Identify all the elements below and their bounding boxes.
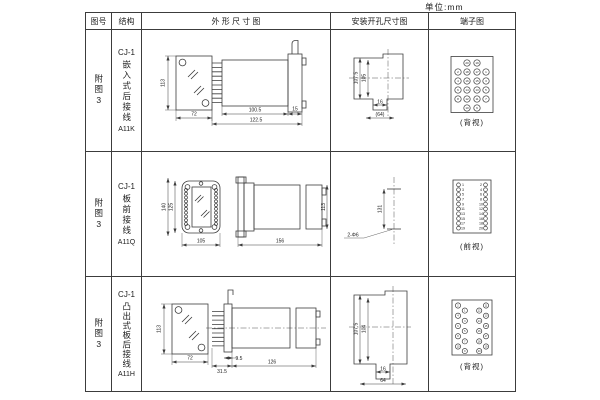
terminal-screw-columns	[185, 189, 218, 226]
svg-text:6: 6	[480, 192, 482, 196]
model-label: CJ-1	[118, 290, 135, 299]
mounting-drawing-row2: 131 2-Φ6	[331, 152, 428, 276]
svg-text:1: 1	[464, 309, 466, 312]
cell-mounting-row1: 107.5 105 16 (64)	[331, 30, 429, 152]
dim-label: 105	[362, 74, 368, 83]
cell-terminal-row3: 2143658710912111413161518172019 (背视)	[429, 277, 515, 391]
model-code: A11Q	[118, 239, 135, 246]
svg-text:1: 1	[485, 70, 487, 74]
terminal-diagram-row3: 2143658710912111413161518172019	[429, 297, 515, 359]
structure-desc: 凸出式板后接线	[122, 302, 131, 369]
figure-label: 附图3	[94, 318, 103, 351]
svg-text:16: 16	[465, 79, 469, 83]
cell-structure-row2: CJ-1 板前接线 A11Q	[112, 152, 142, 277]
front-view: 140 125 105	[162, 178, 221, 247]
svg-text:6: 6	[457, 88, 459, 92]
svg-text:8: 8	[457, 97, 459, 101]
svg-text:4: 4	[480, 187, 482, 191]
model-code: A11H	[118, 371, 135, 378]
dim-label: 107.5	[354, 72, 360, 85]
cell-outline-row3: 113 72 9.5	[142, 277, 331, 391]
svg-text:4: 4	[457, 314, 459, 317]
dim-label: 9.5	[236, 356, 243, 362]
svg-text:12: 12	[479, 207, 483, 211]
cell-outline-row1: 113 72 1	[142, 30, 331, 152]
svg-text:18: 18	[478, 340, 481, 343]
model-code: A11K	[118, 126, 135, 133]
header-terminal: 端子图	[429, 13, 515, 30]
svg-text:5: 5	[464, 330, 466, 333]
terminal-caption: (前视)	[460, 241, 484, 252]
svg-text:9: 9	[462, 202, 464, 206]
svg-text:13: 13	[461, 212, 465, 216]
dim-label: 100.5	[249, 108, 262, 114]
dim-label: 122.5	[250, 118, 263, 124]
svg-text:13: 13	[475, 88, 479, 92]
model-label: CJ-1	[118, 48, 135, 57]
dim-label: (64)	[376, 112, 385, 118]
svg-text:19: 19	[485, 345, 488, 348]
cell-outline-row2: 140 125 105	[142, 152, 331, 277]
svg-text:8: 8	[457, 335, 459, 338]
dim-label: 72	[191, 112, 197, 118]
svg-text:6: 6	[457, 324, 459, 327]
dim-label: 16	[380, 366, 386, 372]
svg-text:12: 12	[465, 97, 469, 101]
mounting-drawing-row3: 107.5 104 16 64	[331, 278, 428, 391]
terminal-caption: (背视)	[460, 361, 484, 372]
svg-text:7: 7	[485, 97, 487, 101]
dim-label: 156	[276, 239, 285, 245]
dim-label: 72	[187, 355, 193, 361]
svg-text:14: 14	[465, 88, 469, 92]
cell-figure-row3: 附图3	[86, 277, 112, 391]
svg-text:4: 4	[457, 79, 459, 83]
front-view: 113 72	[161, 56, 213, 121]
terminal-holes: 1234567891011121314151617181920	[457, 182, 488, 230]
terminal-diagram-row1: 2019218171416153614135812117109	[429, 53, 515, 115]
cell-structure-row3: CJ-1 凸出式板后接线 A11H	[112, 277, 142, 391]
mounting-drawing-row1: 107.5 105 16 (64)	[331, 30, 428, 151]
svg-text:10: 10	[465, 106, 469, 110]
outline-drawing-row2: 140 125 105	[142, 152, 330, 276]
cell-figure-row2: 附图3	[86, 152, 112, 277]
cell-figure-row1: 附图3	[86, 30, 112, 152]
svg-text:3: 3	[462, 187, 464, 191]
svg-text:9: 9	[476, 106, 478, 110]
dim-label: 104	[362, 324, 368, 333]
svg-text:2: 2	[457, 70, 459, 74]
svg-text:20: 20	[479, 226, 483, 230]
header-outline: 外 形 尺 寸 图	[142, 13, 331, 30]
svg-text:18: 18	[479, 221, 483, 225]
figure-label: 附图3	[94, 74, 103, 107]
svg-text:5: 5	[462, 192, 464, 196]
dim-label: 16	[377, 100, 383, 106]
model-label: CJ-1	[118, 182, 135, 191]
dim-label: 131	[378, 205, 384, 214]
cell-terminal-row2: 1234567891011121314151617181920 (前视)	[429, 152, 515, 277]
cell-terminal-row1: 2019218171416153614135812117109 (背视)	[429, 30, 515, 152]
cell-mounting-row3: 107.5 104 16 64	[331, 277, 429, 391]
dim-label: 126	[268, 359, 277, 365]
figure-label: 附图3	[94, 198, 103, 231]
svg-text:11: 11	[461, 207, 465, 211]
svg-text:5: 5	[485, 88, 487, 92]
structure-desc: 板前接线	[122, 194, 131, 236]
dim-label: 15	[292, 107, 298, 113]
spec-table: 图号 结构 外 形 尺 寸 图 安装开孔尺寸图 端子图 附图3 CJ-1 嵌入式…	[85, 12, 516, 392]
svg-text:11: 11	[475, 97, 478, 101]
outline-drawing-row3: 113 72 9.5	[142, 278, 330, 391]
svg-text:17: 17	[485, 335, 488, 338]
svg-text:18: 18	[465, 70, 469, 74]
svg-text:15: 15	[475, 79, 479, 83]
side-view: 9.5 31.5 126	[206, 290, 326, 375]
dim-label: 105	[197, 239, 206, 245]
svg-text:11: 11	[485, 304, 488, 307]
svg-text:8: 8	[480, 197, 482, 201]
svg-text:14: 14	[478, 319, 481, 322]
svg-text:7: 7	[462, 197, 464, 201]
outline-drawing-row1: 113 72 1	[142, 30, 330, 151]
terminal-diagram-row2: 1234567891011121314151617181920	[429, 177, 515, 239]
svg-text:20: 20	[465, 61, 469, 65]
svg-text:2: 2	[480, 183, 482, 187]
svg-text:2: 2	[457, 304, 459, 307]
cell-mounting-row2: 131 2-Φ6	[331, 152, 429, 277]
dim-label: 125	[169, 203, 175, 212]
terminal-caption: (背视)	[460, 117, 484, 128]
svg-text:13: 13	[485, 314, 488, 317]
svg-text:19: 19	[475, 61, 479, 65]
svg-text:16: 16	[478, 330, 481, 333]
svg-text:10: 10	[479, 202, 483, 206]
header-structure: 结构	[112, 13, 142, 30]
svg-text:9: 9	[464, 350, 466, 353]
svg-text:17: 17	[475, 70, 479, 74]
dim-label: 113	[161, 79, 167, 87]
svg-text:15: 15	[461, 216, 465, 220]
svg-text:16: 16	[479, 216, 483, 220]
header-figure: 图号	[86, 13, 112, 30]
dim-label: 113	[321, 203, 327, 211]
hole-spec-label: 2-Φ6	[347, 233, 358, 239]
svg-text:3: 3	[485, 79, 487, 83]
svg-text:19: 19	[461, 226, 465, 230]
side-view: 156 113	[236, 177, 327, 247]
dim-label: 113	[157, 324, 163, 332]
svg-text:3: 3	[464, 319, 466, 322]
dim-label: 107.5	[354, 322, 360, 335]
svg-text:17: 17	[461, 221, 465, 225]
cell-structure-row1: CJ-1 嵌入式后接线 A11K	[112, 30, 142, 152]
svg-text:14: 14	[479, 212, 483, 216]
svg-text:12: 12	[478, 309, 481, 312]
dim-label: 31.5	[217, 369, 227, 375]
terminal-holes: 2019218171416153614135812117109	[455, 60, 489, 111]
svg-text:20: 20	[478, 350, 481, 353]
dim-label: 140	[162, 203, 168, 212]
svg-text:7: 7	[464, 340, 466, 343]
document-page: 单位:mm 图号 结构 外 形 尺 寸 图 安装开孔尺寸图 端子图 附图3 CJ…	[0, 0, 600, 400]
front-view: 113 72	[157, 304, 209, 365]
dim-label: 64	[380, 378, 386, 384]
side-view: 100.5 15 122.5	[212, 41, 306, 127]
svg-text:10: 10	[457, 345, 460, 348]
terminal-holes: 2143658710912111413161518172019	[455, 302, 488, 353]
svg-text:15: 15	[485, 324, 488, 327]
structure-desc: 嵌入式后接线	[122, 60, 131, 123]
header-mounting: 安装开孔尺寸图	[331, 13, 429, 30]
svg-text:1: 1	[462, 183, 464, 187]
